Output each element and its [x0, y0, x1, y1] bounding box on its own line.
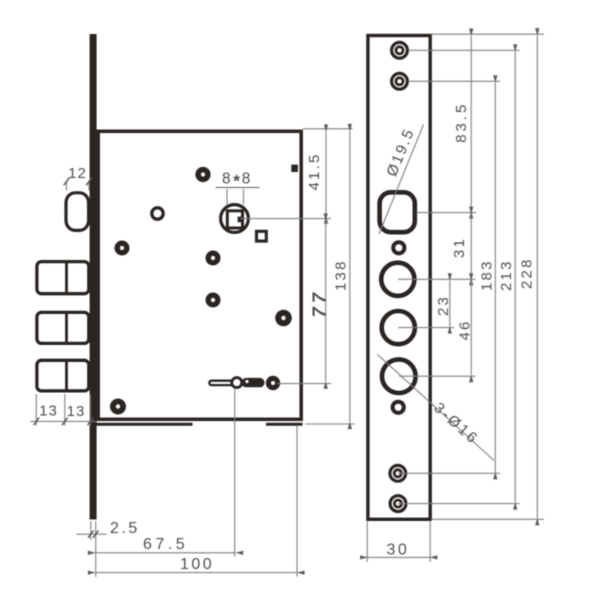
svg-text:77: 77 — [309, 289, 330, 318]
svg-text:31: 31 — [451, 237, 468, 258]
svg-text:213: 213 — [498, 259, 515, 291]
svg-text:41.5: 41.5 — [306, 153, 323, 191]
svg-text:12: 12 — [68, 165, 87, 182]
svg-text:13: 13 — [39, 403, 58, 420]
svg-text:100: 100 — [180, 556, 214, 573]
svg-text:67.5: 67.5 — [143, 536, 188, 553]
svg-text:228: 228 — [519, 257, 536, 289]
svg-text:8: 8 — [242, 171, 251, 188]
svg-text:2.5: 2.5 — [110, 520, 140, 537]
svg-text:30: 30 — [387, 542, 410, 559]
svg-text:3-Ø16: 3-Ø16 — [430, 399, 482, 448]
svg-text:8: 8 — [222, 171, 233, 188]
svg-text:183: 183 — [479, 259, 496, 291]
svg-text:23: 23 — [435, 295, 452, 316]
svg-text:138: 138 — [333, 259, 350, 291]
svg-text:46: 46 — [457, 319, 474, 340]
svg-text:83.5: 83.5 — [453, 102, 470, 143]
svg-text:*: * — [233, 172, 240, 191]
svg-text:13: 13 — [67, 403, 86, 420]
